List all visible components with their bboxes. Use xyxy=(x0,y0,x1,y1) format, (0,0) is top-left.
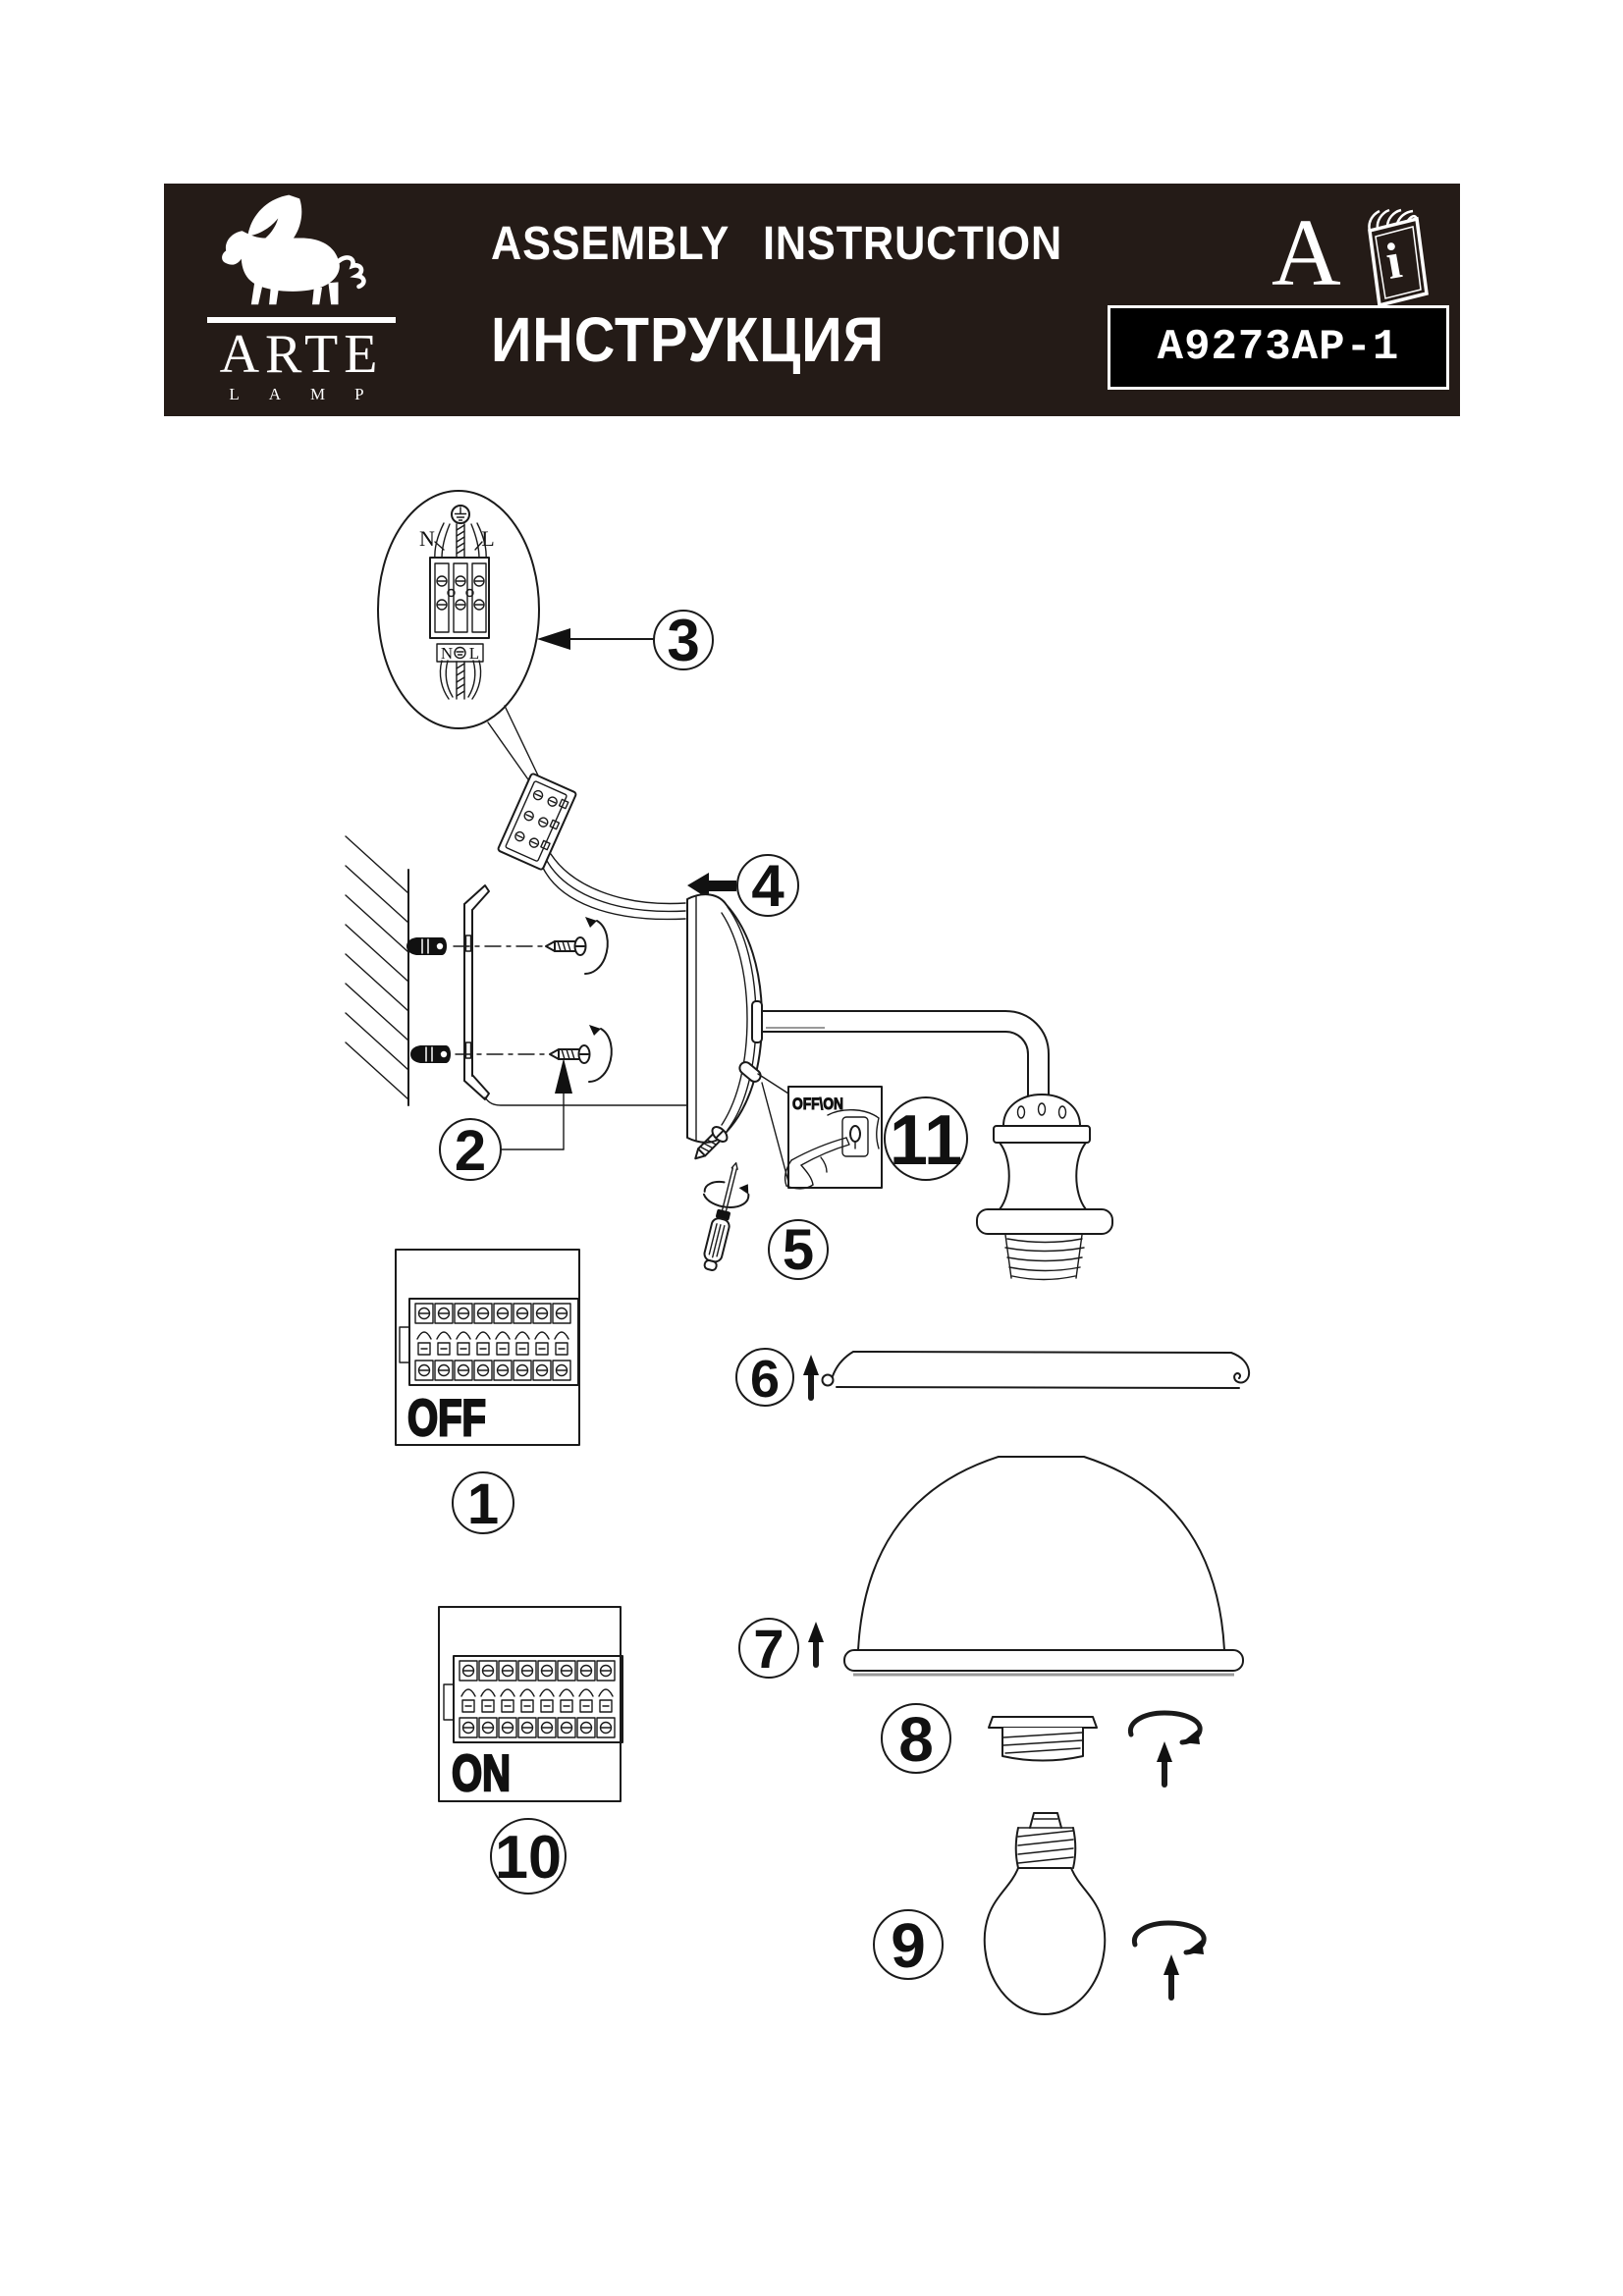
mounting-screw xyxy=(546,937,586,955)
wall-anchor xyxy=(410,1045,451,1063)
callout-6: 6 xyxy=(736,1349,793,1409)
retainer-collar xyxy=(989,1717,1097,1761)
header-band: ARTE LAMP ASSEMBLY INSTRUCTION ИНСТРУКЦИ… xyxy=(164,184,1460,416)
arrow-up-icon xyxy=(803,1355,819,1398)
wall-section xyxy=(346,836,408,1105)
title-russian: ИНСТРУКЦИЯ xyxy=(491,303,885,376)
wire-label-n: N xyxy=(419,526,435,551)
callout-10-number: 10 xyxy=(495,1824,562,1892)
callout-9-number: 9 xyxy=(891,1910,926,1981)
callout-3: 3 xyxy=(537,608,713,673)
strip-label-n: N xyxy=(441,644,453,663)
callout-6-number: 6 xyxy=(750,1350,780,1409)
mounting-screw xyxy=(550,1045,590,1063)
callout-7: 7 xyxy=(739,1618,798,1680)
socket-threads xyxy=(1005,1235,1084,1280)
arrow-up-icon xyxy=(1163,1954,1179,1998)
switch-detail-label: OFF\ON xyxy=(792,1095,843,1113)
light-bulb xyxy=(985,1813,1106,2014)
section-letter: A xyxy=(1271,205,1341,301)
callout-5-number: 5 xyxy=(783,1218,814,1282)
callout-11: 11 xyxy=(885,1097,967,1180)
off-label: OFF xyxy=(407,1390,486,1447)
callout-4-number: 4 xyxy=(751,853,784,919)
earth-ground-icon xyxy=(455,648,465,659)
callout-3-number: 3 xyxy=(667,608,699,673)
rotate-clockwise-icon xyxy=(1130,1713,1200,1744)
callout-8: 8 xyxy=(882,1704,950,1775)
screwdriver xyxy=(686,1157,756,1275)
callout-8-number: 8 xyxy=(898,1704,934,1775)
logo-rule xyxy=(207,317,396,323)
on-label: ON xyxy=(452,1745,511,1802)
brand-logo: ARTE LAMP xyxy=(203,191,400,413)
booklet-letter: i xyxy=(1381,233,1405,291)
callout-5: 5 xyxy=(769,1218,828,1282)
arrow-up-icon xyxy=(1157,1741,1172,1785)
terminal-strip xyxy=(400,1299,578,1385)
off-terminal-box: OFF xyxy=(396,1250,579,1447)
callout-1: 1 xyxy=(453,1472,514,1536)
shade-ring xyxy=(823,1352,1250,1388)
open-booklet-icon: i xyxy=(1344,199,1438,317)
terminal-strip xyxy=(444,1656,622,1742)
callout-11-number: 11 xyxy=(890,1101,962,1180)
wall-anchor xyxy=(406,937,447,955)
rotate-clockwise-icon xyxy=(585,917,608,974)
instruction-sheet: N L xyxy=(0,0,1623,2296)
brand-subname: LAMP xyxy=(213,386,409,402)
callout-9: 9 xyxy=(874,1910,943,1981)
terminal-label-strip: N L xyxy=(437,644,483,663)
arrow-up-icon xyxy=(555,1058,572,1094)
brand-name: ARTE xyxy=(203,327,400,382)
callout-10: 10 xyxy=(491,1819,566,1894)
on-terminal-box: ON xyxy=(439,1607,622,1802)
lamp-socket xyxy=(977,1095,1112,1280)
callout-7-number: 7 xyxy=(753,1618,784,1680)
callout-1-number: 1 xyxy=(467,1472,499,1536)
rotate-clockwise-icon xyxy=(589,1025,612,1082)
earth-ground-icon xyxy=(452,506,469,523)
wall-lamp-canopy xyxy=(687,894,762,1143)
model-badge: A9273AP-1 xyxy=(1108,305,1449,390)
title-english: ASSEMBLY INSTRUCTION xyxy=(491,217,1062,271)
arrow-left-icon xyxy=(537,628,570,650)
winged-lion-icon xyxy=(203,191,400,317)
terminal-block-detail xyxy=(430,558,489,638)
arrow-up-icon xyxy=(808,1622,824,1665)
strip-label-l: L xyxy=(469,644,479,663)
wiring-detail-oval: N L xyxy=(378,491,539,728)
wire-bundle xyxy=(543,854,685,919)
switch-detail-box: OFF\ON xyxy=(785,1087,882,1189)
callout-2: 2 xyxy=(440,1058,572,1183)
callout-2-number: 2 xyxy=(455,1119,486,1183)
rotate-clockwise-icon xyxy=(1134,1923,1204,1954)
supply-terminal-connector xyxy=(498,774,577,871)
lamp-shade xyxy=(844,1457,1243,1675)
